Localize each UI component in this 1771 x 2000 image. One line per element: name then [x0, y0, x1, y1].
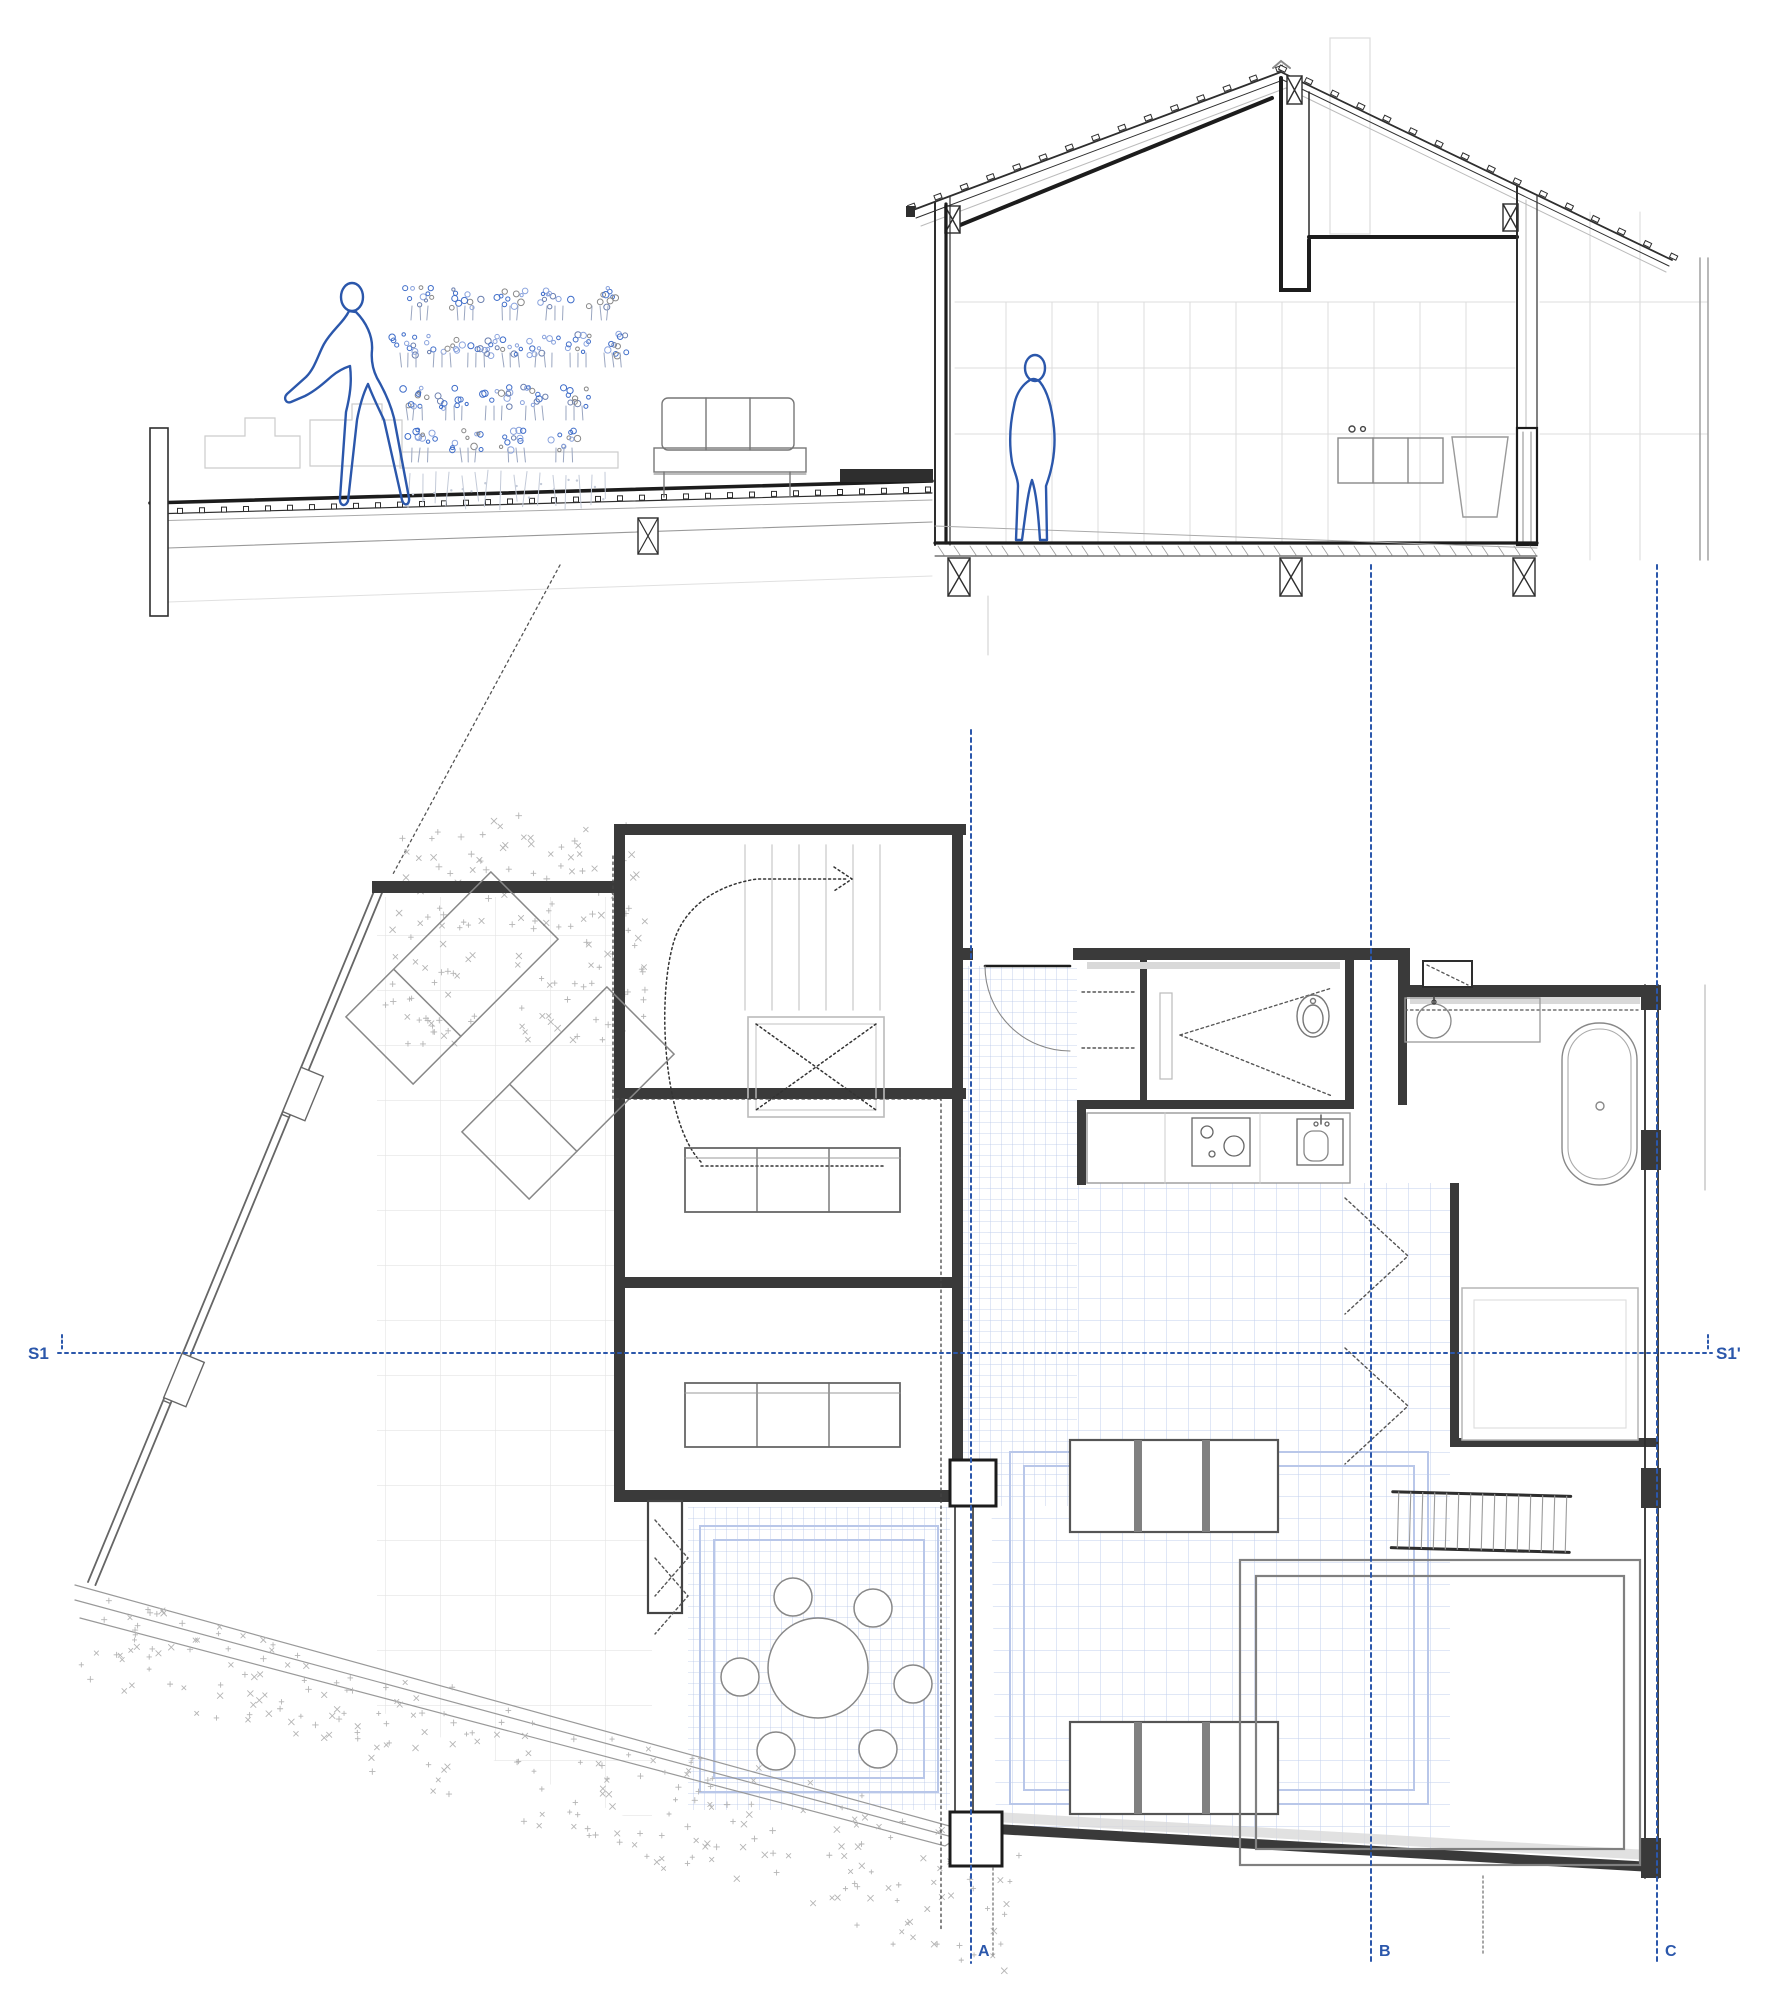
interior-paneling [955, 302, 1515, 543]
stair-hall [665, 845, 884, 1166]
chimney-outline [1330, 38, 1370, 234]
toilet-icon [1297, 995, 1329, 1037]
architectural-drawing: S1 S1' A B C [0, 0, 1771, 2000]
section-drawing [150, 38, 1708, 655]
floor-slab [935, 526, 1537, 655]
sink-icon [1297, 1115, 1343, 1165]
section-label-s1: S1 [28, 1344, 49, 1363]
projection-dotted-lines [993, 1868, 1483, 1956]
grid-label-b: B [1379, 1943, 1391, 1960]
neighbor-background [1540, 212, 1708, 560]
green-wall-planting [389, 286, 629, 510]
kitchen [1087, 1113, 1350, 1183]
kitchen-counter [1338, 426, 1443, 483]
bathroom-wc [1160, 988, 1332, 1096]
drawing-sheet: S1 S1' A B C [0, 0, 1771, 2000]
outdoor-sofa [654, 398, 806, 497]
stove-icon [1192, 1118, 1250, 1166]
floor-plan: S1 S1' A B C [28, 565, 1741, 1974]
bathtub-icon [1562, 1023, 1637, 1185]
pantry [1082, 992, 1136, 1048]
washbasin-vessel [1452, 437, 1508, 517]
room-benches [685, 1148, 900, 1447]
bedroom [1462, 1288, 1638, 1440]
leaning-person [285, 283, 409, 505]
patio-fireplace [648, 1501, 688, 1634]
terrace-deck [150, 428, 933, 616]
east-wall [1641, 985, 1705, 1878]
grid-label-c: C [1665, 1943, 1677, 1960]
loft-wall [1281, 78, 1517, 290]
standing-person [1010, 355, 1054, 540]
grid-label-a: A [978, 1943, 990, 1960]
section-label-s1p: S1' [1716, 1344, 1741, 1363]
